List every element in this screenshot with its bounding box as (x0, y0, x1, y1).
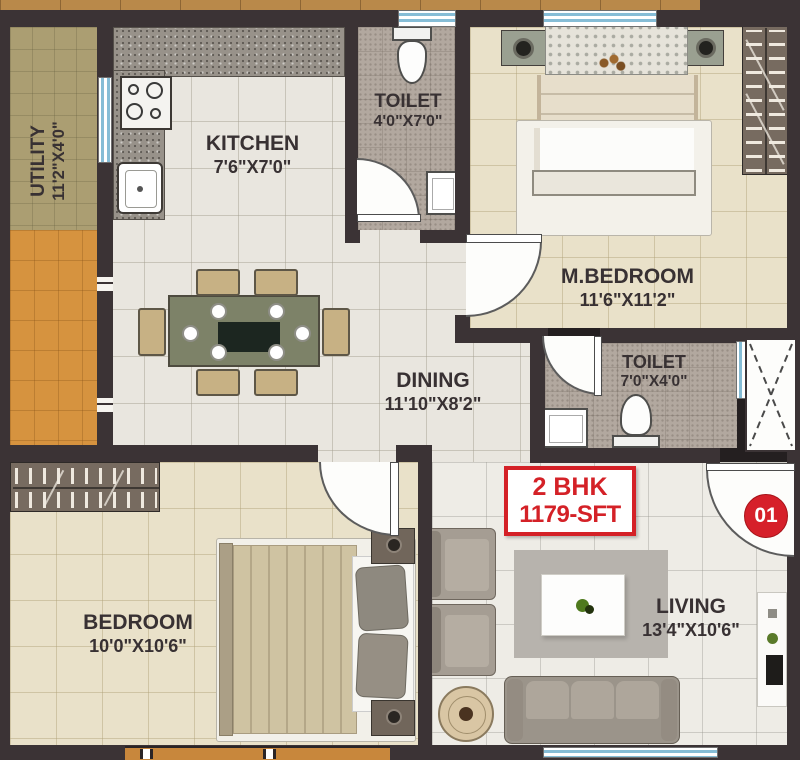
room-dims: 13'4"X10'6" (620, 620, 762, 641)
room-name: BEDROOM (58, 611, 218, 636)
room-name: TOILET (598, 352, 710, 373)
bedroom-label: BEDROOM 10'0"X10'6" (58, 611, 218, 657)
room-dims: 11'6"X11'2" (540, 290, 715, 311)
lamp-icon (386, 537, 402, 553)
wall (0, 445, 318, 462)
duct-x-icon (747, 340, 795, 450)
wardrobe-shelves (15, 492, 157, 508)
dining-chair (138, 308, 166, 356)
wall (0, 10, 10, 760)
wardrobe-divider (13, 487, 159, 489)
wc-toilet-master (612, 394, 660, 448)
sink-basin (432, 178, 454, 210)
lamp-icon (513, 38, 534, 59)
plate-icon (210, 303, 227, 320)
entrance-door-leaf (706, 463, 795, 471)
dining-label: DINING 11'10"X8'2" (358, 369, 508, 415)
window (543, 747, 718, 758)
kitchen-sink (117, 162, 163, 214)
master-bedroom-label: M.BEDROOM 11'6"X11'2" (540, 265, 715, 311)
room-dims: 10'0"X10'6" (58, 636, 218, 657)
room-name: TOILET (355, 91, 461, 113)
room-name: M.BEDROOM (540, 265, 715, 290)
wood-trim-top (0, 0, 700, 10)
sink-basin (549, 415, 583, 443)
kitchen-label: KITCHEN 7'6"X7'0" (180, 132, 325, 178)
duct-shaft (745, 338, 797, 452)
room-dims: 11'2"X4'0" (50, 90, 69, 232)
bedroom-wardrobe (10, 462, 160, 512)
room-dims: 11'10"X8'2" (358, 394, 508, 415)
room-dims: 7'0"X4'0" (598, 373, 710, 391)
room-name: UTILITY (28, 90, 50, 232)
master-bedroom-door-leaf (466, 234, 542, 243)
burner-icon (150, 108, 161, 119)
living-label: LIVING 13'4"X10'6" (620, 595, 762, 641)
tv-icon (766, 655, 783, 685)
room-name: KITCHEN (180, 132, 325, 157)
wc-bowl (397, 40, 427, 84)
table-center (459, 707, 473, 721)
plate-icon (268, 344, 285, 361)
wc-tank (392, 26, 432, 41)
wall (530, 448, 720, 463)
toilet-top-label: TOILET 4'0"X7'0" (355, 91, 461, 132)
wall (418, 445, 432, 760)
sofa-cushion (616, 681, 659, 719)
window (125, 746, 390, 760)
sofa-cushion (526, 681, 569, 719)
round-side-table (438, 686, 494, 742)
lamp-icon (696, 38, 716, 58)
utility-label: UTILITY 11'2"X4'0" (28, 90, 86, 232)
toilet-master-sink (542, 408, 588, 448)
bed-footboard (219, 543, 233, 736)
wall (345, 230, 360, 243)
wardrobe-divider (765, 28, 767, 174)
badge-area: 1179-SFT (519, 502, 620, 528)
wc-bowl (620, 394, 652, 436)
armchair (424, 604, 496, 676)
utility-balcony-floor (10, 230, 97, 445)
room-dims: 7'6"X7'0" (180, 157, 325, 178)
dining-chair (196, 269, 240, 296)
decor-item (768, 609, 777, 618)
stove (120, 76, 172, 130)
plate-icon (294, 325, 311, 342)
toilet-master-label: TOILET 7'0"X4'0" (598, 352, 710, 392)
nightstand (371, 700, 415, 736)
plate-icon (210, 344, 227, 361)
sofa-arm (507, 679, 523, 741)
bed-flower-decor (592, 50, 632, 76)
sofa-cushion (571, 681, 614, 719)
wall-opening (97, 396, 113, 414)
master-bed-blanket (534, 128, 694, 176)
dining-chair (196, 369, 240, 396)
plate-icon (268, 303, 285, 320)
window (543, 10, 657, 27)
window (98, 77, 112, 163)
unit-number-badge: 01 (744, 494, 788, 538)
bedroom-door-leaf (390, 462, 399, 536)
floor-plan: UTILITY 11'2"X4'0" KITCHEN 7'6"X7'0" TOI… (0, 0, 800, 760)
sofa-arm (661, 679, 677, 741)
armchair (424, 528, 496, 600)
nightstand (687, 30, 724, 66)
room-name: DINING (358, 369, 508, 394)
toilet-top-door-leaf (357, 214, 421, 222)
burner-icon (146, 82, 163, 99)
wall (420, 230, 470, 243)
plant-icon (585, 605, 594, 614)
burner-icon (128, 84, 139, 95)
unit-number: 01 (754, 504, 777, 528)
pillow (355, 564, 409, 631)
room-name: LIVING (620, 595, 762, 620)
room-dims: 4'0"X7'0" (355, 113, 461, 132)
wall-opening (97, 275, 113, 293)
unit-badge: 2 BHK 1179-SFT (504, 466, 636, 536)
wall (700, 0, 800, 10)
wc-toilet-top (392, 26, 432, 88)
coffee-table (541, 574, 625, 636)
dining-chair (254, 269, 298, 296)
plate-icon (182, 325, 199, 342)
nightstand (501, 30, 546, 66)
master-bed-footboard (532, 170, 696, 196)
window (398, 10, 456, 27)
window-mullion (140, 749, 153, 759)
window-mullion (263, 749, 276, 759)
sink-drain (137, 186, 143, 192)
sofa (504, 676, 680, 744)
lamp-icon (386, 709, 402, 725)
master-wardrobe (742, 25, 788, 175)
wc-tank (612, 435, 660, 448)
wardrobe-shelves (15, 468, 157, 484)
pillow (355, 633, 408, 700)
badge-type: 2 BHK (532, 474, 607, 502)
burner-icon (126, 103, 143, 120)
bed-blanket (233, 545, 357, 734)
armchair-seat (445, 615, 489, 667)
plant-icon (767, 633, 778, 644)
armchair-seat (445, 539, 489, 591)
dining-chair (322, 308, 350, 356)
dining-chair (254, 369, 298, 396)
